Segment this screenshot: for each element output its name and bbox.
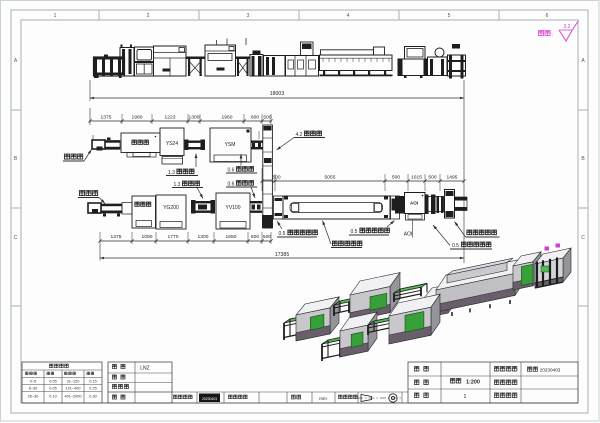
svg-text:1:200: 1:200 xyxy=(466,380,480,386)
svg-text:17385: 17385 xyxy=(275,252,290,258)
svg-text:0.10: 0.10 xyxy=(49,395,56,399)
svg-text:0.15: 0.15 xyxy=(89,380,96,384)
svg-text:YG200: YG200 xyxy=(163,205,179,211)
svg-text:121~400: 121~400 xyxy=(66,387,81,391)
svg-text::: : xyxy=(552,33,553,39)
svg-text:1300: 1300 xyxy=(189,115,200,121)
svg-text:6~30: 6~30 xyxy=(29,387,38,391)
svg-text:1300: 1300 xyxy=(198,234,209,240)
svg-text:500: 500 xyxy=(263,234,271,240)
svg-text:0.05: 0.05 xyxy=(49,380,56,384)
svg-text:0.25: 0.25 xyxy=(89,387,96,391)
svg-text:0.5: 0.5 xyxy=(279,231,286,237)
svg-text:20230403: 20230403 xyxy=(202,397,217,401)
svg-text:mm: mm xyxy=(319,396,327,401)
svg-text:YS24: YS24 xyxy=(166,141,178,147)
svg-text:LNZ: LNZ xyxy=(140,366,149,372)
svg-text:3.2: 3.2 xyxy=(564,24,571,30)
svg-text:AOI: AOI xyxy=(410,201,418,206)
svg-text:6: 6 xyxy=(546,13,549,19)
svg-text:500: 500 xyxy=(428,175,436,181)
svg-text:YSM: YSM xyxy=(225,142,236,148)
svg-text:31~120: 31~120 xyxy=(67,380,80,384)
svg-text:500: 500 xyxy=(392,175,400,181)
svg-text:20230403: 20230403 xyxy=(540,368,561,373)
svg-text:0.30: 0.30 xyxy=(89,395,96,399)
svg-text:2: 2 xyxy=(147,13,150,19)
svg-text:AOI: AOI xyxy=(404,232,413,238)
svg-text:1090: 1090 xyxy=(142,234,153,240)
svg-text:1770: 1770 xyxy=(168,234,179,240)
svg-text:C: C xyxy=(14,235,18,241)
svg-text:1495: 1495 xyxy=(447,175,458,181)
svg-text:4: 4 xyxy=(347,13,350,19)
svg-text:1: 1 xyxy=(54,13,57,19)
svg-text:C: C xyxy=(581,235,585,241)
svg-text:1980: 1980 xyxy=(132,115,143,121)
svg-text:18003: 18003 xyxy=(270,91,285,97)
svg-text:1960: 1960 xyxy=(222,115,233,121)
svg-text:500: 500 xyxy=(272,175,280,181)
svg-text:1650: 1650 xyxy=(226,234,237,240)
svg-text:1: 1 xyxy=(464,394,467,400)
svg-text:1375: 1375 xyxy=(111,234,122,240)
svg-text:401~2000: 401~2000 xyxy=(65,395,82,399)
svg-text:0.5: 0.5 xyxy=(452,243,459,249)
svg-text:1223: 1223 xyxy=(165,115,176,121)
svg-text:600: 600 xyxy=(251,234,259,240)
svg-text:1375: 1375 xyxy=(101,115,112,121)
svg-text:5055: 5055 xyxy=(325,175,336,181)
svg-text:500: 500 xyxy=(263,115,271,121)
svg-text:1015: 1015 xyxy=(411,175,422,181)
svg-text:600: 600 xyxy=(251,115,259,121)
svg-text:0~5: 0~5 xyxy=(30,380,36,384)
svg-text:YV100: YV100 xyxy=(225,205,240,211)
svg-text:0.05: 0.05 xyxy=(49,387,56,391)
svg-text:0.5: 0.5 xyxy=(351,229,358,235)
svg-text:3: 3 xyxy=(247,13,250,19)
svg-text:5: 5 xyxy=(448,13,451,19)
svg-text:26~30: 26~30 xyxy=(28,395,39,399)
